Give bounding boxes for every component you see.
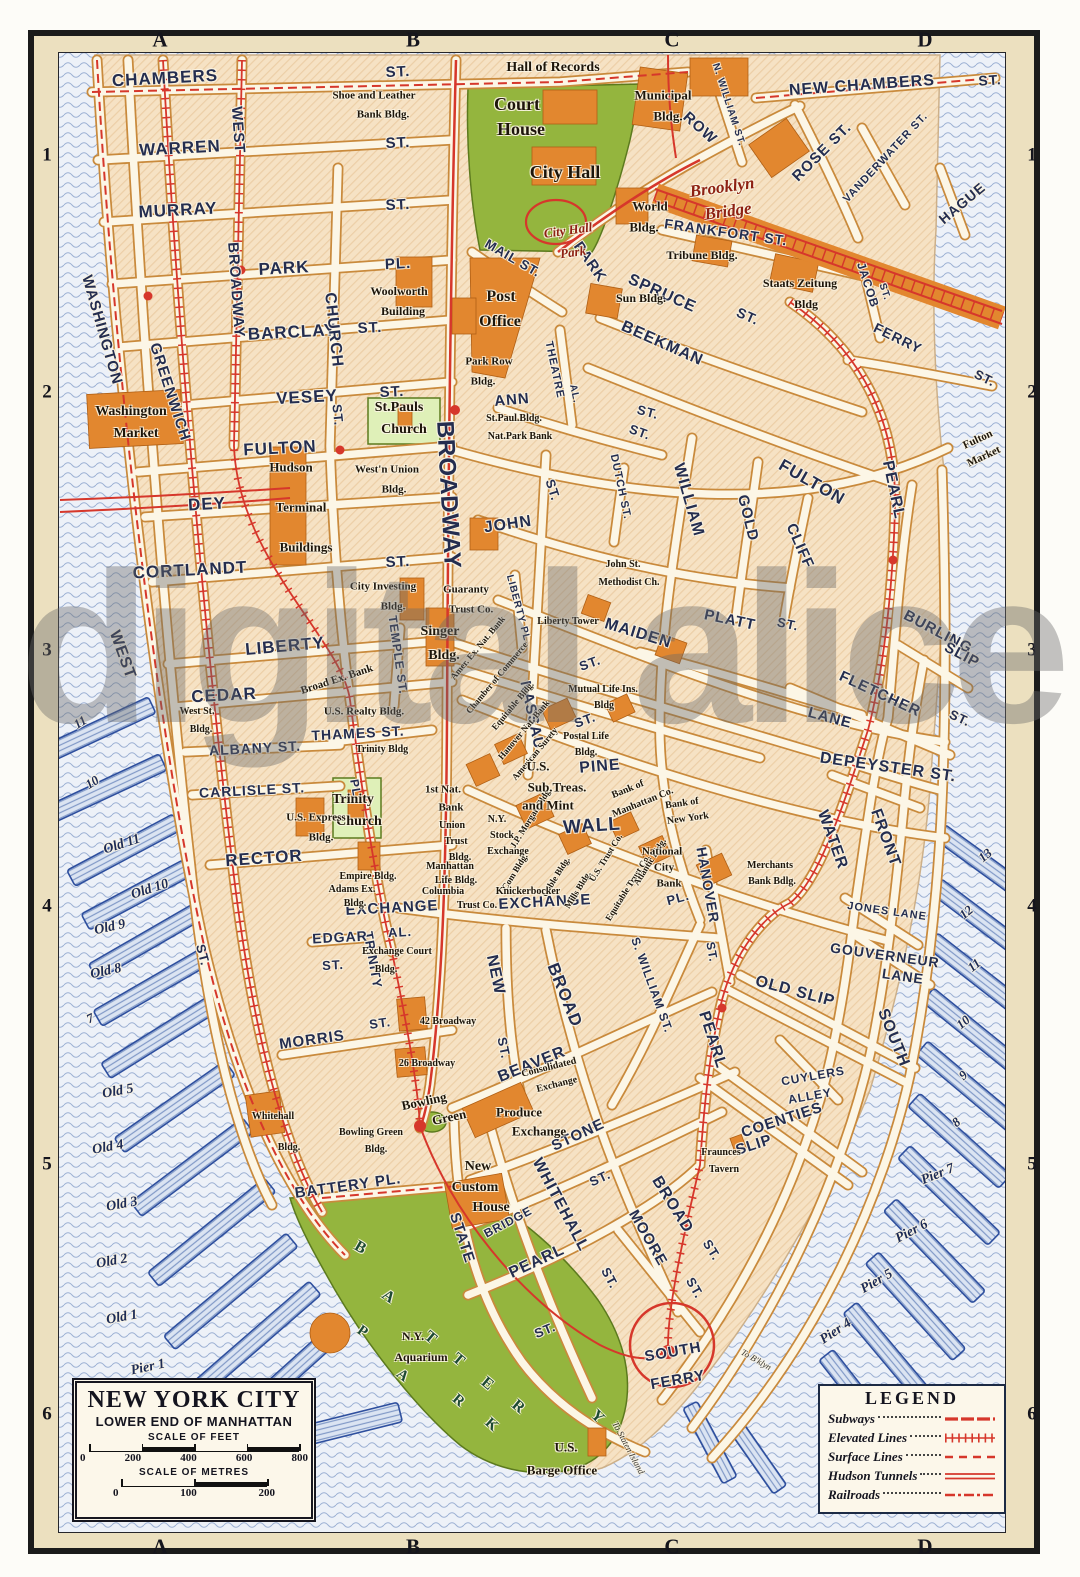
hudson-tunnel-symbol [944, 1470, 996, 1482]
scale-feet-ticks: 0200 400600 800 [80, 1452, 308, 1464]
legend: LEGEND Subways Elevated Lines Surface Li… [818, 1384, 1006, 1514]
legend-row-surface: Surface Lines [828, 1447, 996, 1466]
map-page: digital alice ABCDABCD123456123456CHAMBE… [0, 0, 1080, 1577]
legend-row-elevated: Elevated Lines [828, 1428, 996, 1447]
legend-title: LEGEND [828, 1388, 996, 1409]
map-canvas [0, 0, 1080, 1577]
subway-line-symbol [944, 1413, 996, 1425]
legend-row-hudson-tunnels: Hudson Tunnels [828, 1466, 996, 1485]
elevated-line-symbol [944, 1432, 996, 1444]
title-box: NEW YORK CITY LOWER END OF MANHATTAN SCA… [72, 1378, 316, 1522]
scale-metres-bar [121, 1479, 267, 1487]
map-title: NEW YORK CITY [77, 1387, 311, 1414]
map-subtitle: LOWER END OF MANHATTAN [77, 1414, 311, 1429]
scale-feet-bar [89, 1444, 299, 1452]
surface-line-symbol [944, 1451, 996, 1463]
legend-row-subways: Subways [828, 1409, 996, 1428]
scale-metres-ticks: 0100 200 [113, 1487, 275, 1499]
legend-row-railroads: Railroads [828, 1485, 996, 1504]
scale-feet-label: SCALE OF FEET [77, 1432, 311, 1443]
scale-metres-label: SCALE OF METRES [77, 1467, 311, 1478]
railroad-line-symbol [944, 1489, 996, 1501]
